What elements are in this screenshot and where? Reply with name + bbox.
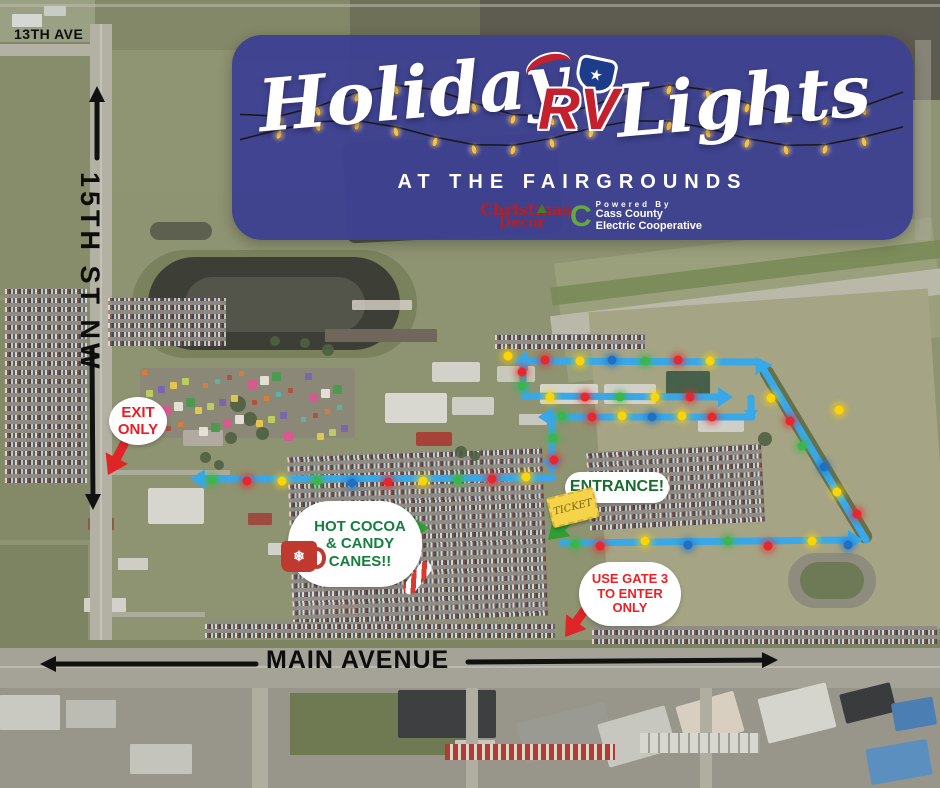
holiday-lights-fairgrounds-map: 13TH AVE 15TH ST NW MAIN AVENUE Holiday … xyxy=(0,0,940,788)
route-light-dot xyxy=(558,412,567,421)
route-light-dot xyxy=(208,476,217,485)
route-light-dot xyxy=(576,357,585,366)
route-light-dot xyxy=(641,357,650,366)
callout-exit-only: EXIT ONLY xyxy=(109,397,167,445)
route-light-dot xyxy=(243,477,252,486)
route-light-dot xyxy=(641,537,650,546)
route-light-dot xyxy=(651,393,660,402)
banner-title-lights: Lights xyxy=(613,54,873,148)
route-light-dot xyxy=(648,413,657,422)
route-light-dot xyxy=(522,473,531,482)
callout-hot-cocoa: HOT COCOA & CANDY CANES!! ❄ xyxy=(288,501,422,587)
gate3-line2: TO ENTER xyxy=(597,587,663,602)
route-light-dot xyxy=(518,382,527,391)
street-label-13th-ave: 13TH AVE xyxy=(14,27,83,41)
route-light-dot xyxy=(618,412,627,421)
route-light-dot xyxy=(588,413,597,422)
street-label-15th-st-nw: 15TH ST NW xyxy=(76,172,103,373)
main-east-arrow xyxy=(468,660,766,662)
route-light-dot xyxy=(550,456,559,465)
exit-line1: EXIT xyxy=(121,404,154,421)
coop-c-icon: C xyxy=(570,203,592,230)
route-light-dot xyxy=(786,417,795,426)
st15-south-arrow-head xyxy=(85,494,101,510)
route-light-dot xyxy=(820,463,829,472)
route-light-dot xyxy=(348,479,357,488)
cocoa-line3: CANES!! xyxy=(329,553,392,570)
cass-county-electric-logo: C Powered By Cass County Electric Cooper… xyxy=(570,200,702,232)
gate3-line3: ONLY xyxy=(613,601,648,616)
route-light-dot xyxy=(278,477,287,486)
route-light-dot xyxy=(853,510,862,519)
coop-name-line1: Cass County xyxy=(596,209,702,221)
route-light-dot xyxy=(541,356,550,365)
route-light-dot xyxy=(546,393,555,402)
route-light-dot xyxy=(674,356,683,365)
route-light-dot xyxy=(684,541,693,550)
ticket-label: TICKET xyxy=(552,497,593,517)
cocoa-line1: HOT COCOA xyxy=(314,518,406,535)
callout-use-gate-3: USE GATE 3 TO ENTER ONLY xyxy=(579,562,681,626)
route-light-dot xyxy=(419,477,428,486)
christmas-tree-icon xyxy=(537,204,547,213)
banner-subtitle: AT THE FAIRGROUNDS xyxy=(232,171,913,194)
st15-north-arrow-head xyxy=(89,86,105,102)
route-light-dot xyxy=(384,478,393,487)
route-light-dot xyxy=(767,394,776,403)
route-light-dot xyxy=(808,537,817,546)
rv-logo-text: RV xyxy=(538,81,619,139)
event-banner: Holiday Lights ★ RV AT THE FAIRGROUNDS C… xyxy=(232,35,913,240)
exit-line2: ONLY xyxy=(118,421,158,438)
route-light-dot xyxy=(833,488,842,497)
route-light-dot xyxy=(581,393,590,402)
christmas-decor-logo: Christmas Decor xyxy=(480,203,564,230)
route-light-dot xyxy=(616,393,625,402)
route-light-dot xyxy=(596,542,605,551)
route-light-dot xyxy=(764,542,773,551)
route-light-dot xyxy=(313,477,322,486)
route-light-dot xyxy=(724,537,733,546)
route-light-dot xyxy=(571,540,580,549)
street-label-main-avenue: MAIN AVENUE xyxy=(266,648,449,673)
cocoa-mug-icon: ❄ xyxy=(281,541,317,572)
route-row2-eastbound-arrowhead xyxy=(718,387,733,407)
rv-dealer-logo: ★ RV xyxy=(524,55,624,163)
route-light-dot xyxy=(454,476,463,485)
route-light-dot xyxy=(844,541,853,550)
route-light-dot xyxy=(835,406,844,415)
route-light-dot xyxy=(518,368,527,377)
route-exit-westbound-arrowhead xyxy=(190,469,205,489)
main-west-arrow-head xyxy=(40,656,56,672)
gate3-line1: USE GATE 3 xyxy=(592,572,668,587)
route-light-dot xyxy=(488,475,497,484)
route-light-dot xyxy=(549,434,558,443)
route-light-dot xyxy=(706,357,715,366)
cocoa-line2: & CANDY xyxy=(326,535,394,552)
route-light-dot xyxy=(798,442,807,451)
route-light-dot xyxy=(504,352,513,361)
route-light-dot xyxy=(608,356,617,365)
christmas-decor-line2: Decor xyxy=(480,217,564,230)
coop-name-line2: Electric Cooperative xyxy=(596,221,702,233)
main-east-arrow-head xyxy=(762,652,778,668)
route-light-dot xyxy=(678,412,687,421)
route-light-dot xyxy=(686,393,695,402)
route-light-dot xyxy=(708,413,717,422)
